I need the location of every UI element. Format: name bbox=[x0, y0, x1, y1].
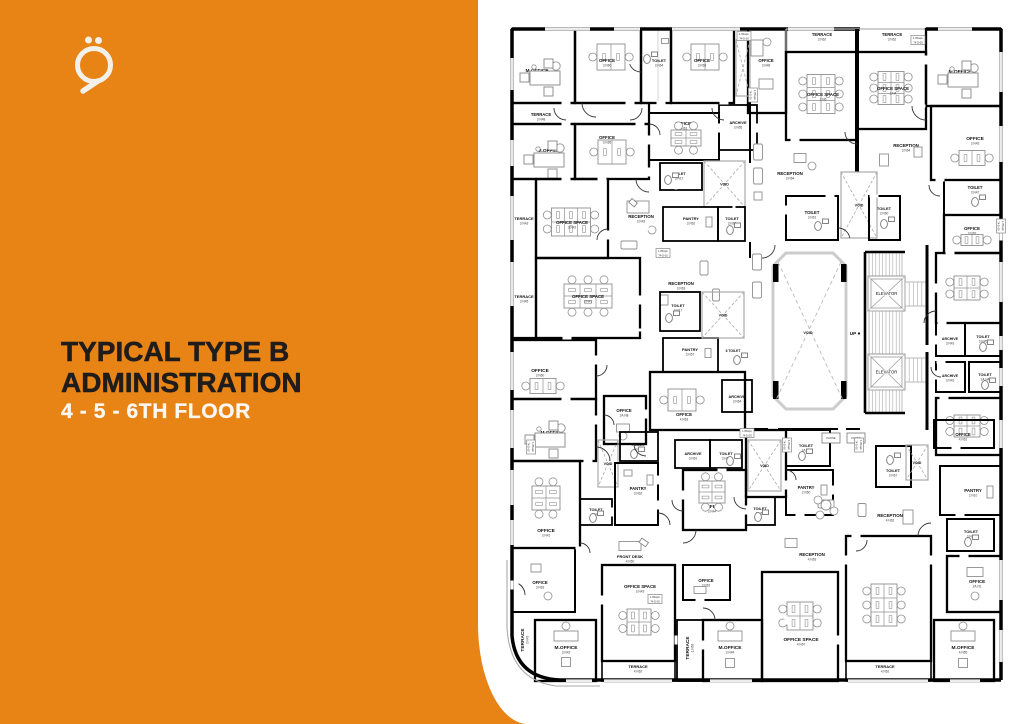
svg-text:PANTRY: PANTRY bbox=[964, 488, 982, 493]
svg-text:3.N64: 3.N64 bbox=[733, 400, 742, 404]
svg-text:TOILET: TOILET bbox=[799, 443, 814, 448]
svg-text:TOILET: TOILET bbox=[652, 58, 667, 63]
svg-text:1.05sqm: 1.05sqm bbox=[1001, 221, 1005, 231]
svg-text:UP: UP bbox=[850, 331, 856, 336]
svg-text:VOID: VOID bbox=[913, 461, 922, 465]
svg-text:TOILET: TOILET bbox=[978, 373, 992, 377]
svg-text:2.N4: 2.N4 bbox=[890, 92, 897, 96]
svg-text:3.N47: 3.N47 bbox=[971, 191, 980, 195]
svg-text:3.N67: 3.N67 bbox=[686, 353, 695, 357]
svg-text:TERRACE: TERRACE bbox=[531, 112, 551, 117]
svg-text:OFFICE: OFFICE bbox=[599, 58, 615, 63]
svg-text:4.N62: 4.N62 bbox=[881, 670, 890, 674]
svg-text:ARCHIVE: ARCHIVE bbox=[729, 121, 747, 125]
svg-text:1.05sqm: 1.05sqm bbox=[913, 36, 923, 40]
svg-text:OFFICE: OFFICE bbox=[676, 412, 692, 417]
svg-text:4.N63: 4.N63 bbox=[680, 418, 689, 422]
svg-text:3.N43: 3.N43 bbox=[946, 342, 955, 346]
svg-text:3.N43: 3.N43 bbox=[971, 142, 980, 146]
svg-text:TERRACE: TERRACE bbox=[514, 294, 534, 299]
svg-text:3.N61: 3.N61 bbox=[808, 216, 817, 220]
svg-text:TERRACE: TERRACE bbox=[812, 32, 832, 37]
svg-text:74-D-05: 74-D-05 bbox=[742, 433, 752, 437]
svg-text:VOID: VOID bbox=[760, 464, 769, 468]
svg-text:1.05sqm: 1.05sqm bbox=[787, 440, 791, 450]
svg-text:2.N10: 2.N10 bbox=[969, 494, 978, 498]
svg-text:4.N61: 4.N61 bbox=[959, 438, 968, 442]
svg-text:OFFICE SPACE: OFFICE SPACE bbox=[877, 86, 909, 91]
svg-text:TOILET: TOILET bbox=[976, 335, 990, 339]
svg-text:OFFICE: OFFICE bbox=[955, 432, 971, 437]
svg-text:RECEPTION: RECEPTION bbox=[668, 281, 694, 286]
svg-text:PANTRY: PANTRY bbox=[630, 486, 647, 491]
svg-text:ELEVATOR: ELEVATOR bbox=[876, 370, 898, 375]
svg-text:PANTRY: PANTRY bbox=[683, 216, 699, 221]
svg-text:3.N43: 3.N43 bbox=[636, 590, 645, 594]
svg-text:1.05sqm: 1.05sqm bbox=[658, 249, 668, 253]
svg-text:74-D-05: 74-D-05 bbox=[913, 40, 923, 44]
svg-text:OFFICE: OFFICE bbox=[694, 58, 710, 63]
svg-text:TERRACE: TERRACE bbox=[514, 216, 534, 221]
svg-text:OFFICE SPACE: OFFICE SPACE bbox=[807, 92, 839, 97]
svg-text:3.N63: 3.N63 bbox=[536, 586, 545, 590]
svg-text:VOID: VOID bbox=[604, 462, 613, 466]
svg-text:3.N65: 3.N65 bbox=[603, 141, 612, 145]
svg-text:74-D-05: 74-D-05 bbox=[658, 253, 668, 257]
svg-text:3.N64: 3.N64 bbox=[786, 177, 795, 181]
svg-text:VOID: VOID bbox=[719, 314, 728, 318]
svg-text:TOILET: TOILET bbox=[719, 452, 733, 456]
svg-text:TOILET: TOILET bbox=[725, 217, 739, 221]
svg-text:1.05sqm: 1.05sqm bbox=[742, 429, 752, 433]
svg-text:3.N63: 3.N63 bbox=[698, 64, 707, 68]
svg-text:RECEPTION: RECEPTION bbox=[877, 513, 903, 518]
svg-text:3.N42: 3.N42 bbox=[568, 226, 577, 230]
svg-text:ARCHIVE: ARCHIVE bbox=[684, 452, 702, 456]
svg-text:2A.N8: 2A.N8 bbox=[620, 414, 629, 418]
svg-text:TOILET: TOILET bbox=[886, 468, 901, 473]
svg-text:1.N63: 1.N63 bbox=[691, 644, 695, 653]
svg-text:3.N60: 3.N60 bbox=[603, 64, 612, 68]
svg-text:1.05sqm: 1.05sqm bbox=[650, 595, 660, 599]
svg-text:OFFICE SPACE: OFFICE SPACE bbox=[556, 220, 588, 225]
svg-text:OFFICE: OFFICE bbox=[532, 580, 548, 585]
svg-text:3.N64: 3.N64 bbox=[655, 64, 664, 68]
svg-text:4.N60: 4.N60 bbox=[626, 560, 635, 564]
svg-text:TERRACE: TERRACE bbox=[882, 32, 902, 37]
svg-text:1.05sqm: 1.05sqm bbox=[531, 442, 535, 452]
svg-text:FRONT DESK: FRONT DESK bbox=[617, 554, 643, 559]
svg-text:OFFICE: OFFICE bbox=[969, 579, 985, 584]
svg-text:2A.N1: 2A.N1 bbox=[973, 585, 982, 589]
svg-text:74-D-05: 74-D-05 bbox=[650, 599, 660, 603]
svg-text:3.N62: 3.N62 bbox=[687, 222, 696, 226]
svg-text:OFFICE: OFFICE bbox=[964, 226, 980, 231]
svg-text:3.N48: 3.N48 bbox=[762, 64, 771, 68]
svg-text:3.N43: 3.N43 bbox=[946, 379, 955, 383]
svg-text:2.N60: 2.N60 bbox=[802, 491, 811, 495]
svg-text:3.N62: 3.N62 bbox=[634, 492, 643, 496]
svg-text:3.N44: 3.N44 bbox=[708, 510, 717, 514]
svg-text:PANTRY: PANTRY bbox=[682, 347, 698, 352]
svg-text:VOID: VOID bbox=[720, 183, 729, 187]
svg-text:OFFICE SPACE: OFFICE SPACE bbox=[624, 584, 656, 589]
svg-text:TOILET: TOILET bbox=[968, 185, 983, 190]
svg-text:74-D-05: 74-D-05 bbox=[855, 440, 859, 450]
svg-text:1.05sqm: 1.05sqm bbox=[739, 32, 749, 36]
svg-text:3.N43: 3.N43 bbox=[562, 651, 571, 655]
svg-text:OFFICE: OFFICE bbox=[758, 58, 774, 63]
svg-text:1.05sqm: 1.05sqm bbox=[859, 440, 863, 450]
svg-text:3.N43: 3.N43 bbox=[520, 222, 529, 226]
svg-text:TOILET: TOILET bbox=[964, 529, 979, 534]
svg-text:VOID: VOID bbox=[803, 331, 813, 335]
svg-text:3.N64: 3.N64 bbox=[902, 149, 911, 153]
svg-text:TERRACE: TERRACE bbox=[875, 664, 895, 669]
svg-text:6 TOILET: 6 TOILET bbox=[726, 349, 742, 353]
svg-text:74-D-05: 74-D-05 bbox=[783, 440, 787, 450]
svg-text:3.N60: 3.N60 bbox=[536, 374, 545, 378]
svg-text:4.N62: 4.N62 bbox=[634, 670, 643, 674]
svg-text:74-D-05: 74-D-05 bbox=[997, 221, 1001, 231]
svg-text:3.N43: 3.N43 bbox=[526, 636, 530, 645]
svg-text:TOILET: TOILET bbox=[671, 304, 685, 308]
svg-text:TERRACE: TERRACE bbox=[628, 664, 648, 669]
svg-text:3.N65: 3.N65 bbox=[734, 126, 743, 130]
svg-text:74-D-05: 74-D-05 bbox=[739, 36, 749, 40]
svg-text:3.N44: 3.N44 bbox=[726, 651, 735, 655]
svg-text:ELEVATOR: ELEVATOR bbox=[876, 291, 898, 296]
svg-text:3.N48: 3.N48 bbox=[537, 118, 546, 122]
svg-text:3.N67: 3.N67 bbox=[889, 474, 898, 478]
svg-text:OFFICE: OFFICE bbox=[599, 135, 615, 140]
svg-text:RECEPTION: RECEPTION bbox=[628, 214, 654, 219]
svg-text:3.N45: 3.N45 bbox=[520, 300, 529, 304]
svg-text:RECEPTION: RECEPTION bbox=[777, 171, 803, 176]
svg-text:3.N62: 3.N62 bbox=[818, 38, 827, 42]
svg-text:3.N63: 3.N63 bbox=[677, 287, 686, 291]
svg-text:ARCHIVE: ARCHIVE bbox=[942, 374, 959, 378]
svg-text:OFFICE: OFFICE bbox=[698, 578, 714, 583]
svg-text:4.N67: 4.N67 bbox=[797, 643, 806, 647]
svg-text:3.N41: 3.N41 bbox=[584, 300, 593, 304]
svg-text:RECEPTION: RECEPTION bbox=[799, 552, 825, 557]
svg-text:PHONE: PHONE bbox=[826, 436, 835, 440]
svg-text:4.N63: 4.N63 bbox=[808, 558, 817, 562]
svg-text:PANTRY: PANTRY bbox=[798, 485, 815, 490]
svg-text:3.N61: 3.N61 bbox=[689, 457, 698, 461]
svg-text:OFFICE SPACE: OFFICE SPACE bbox=[572, 294, 604, 299]
svg-text:3.N60: 3.N60 bbox=[880, 212, 889, 216]
svg-text:ARCHIVE: ARCHIVE bbox=[942, 337, 959, 341]
svg-text:3.N62: 3.N62 bbox=[888, 38, 897, 42]
svg-text:3.N41: 3.N41 bbox=[542, 534, 551, 538]
svg-text:TOILET: TOILET bbox=[877, 206, 892, 211]
svg-text:TOILET: TOILET bbox=[805, 210, 820, 215]
svg-text:TOILET: TOILET bbox=[631, 442, 646, 447]
svg-text:74-D-05: 74-D-05 bbox=[749, 90, 753, 100]
svg-text:4.N65: 4.N65 bbox=[959, 651, 968, 655]
svg-text:OFFICE: OFFICE bbox=[616, 408, 632, 413]
svg-text:3.N6: 3.N6 bbox=[820, 98, 827, 102]
svg-text:74-D-05: 74-D-05 bbox=[527, 442, 531, 452]
svg-text:1.05sqm: 1.05sqm bbox=[753, 90, 757, 100]
svg-text:VOID: VOID bbox=[855, 204, 864, 208]
svg-text:3.N43: 3.N43 bbox=[637, 220, 646, 224]
svg-text:4.N62: 4.N62 bbox=[886, 519, 895, 523]
svg-text:ARCHIVE: ARCHIVE bbox=[728, 395, 746, 399]
